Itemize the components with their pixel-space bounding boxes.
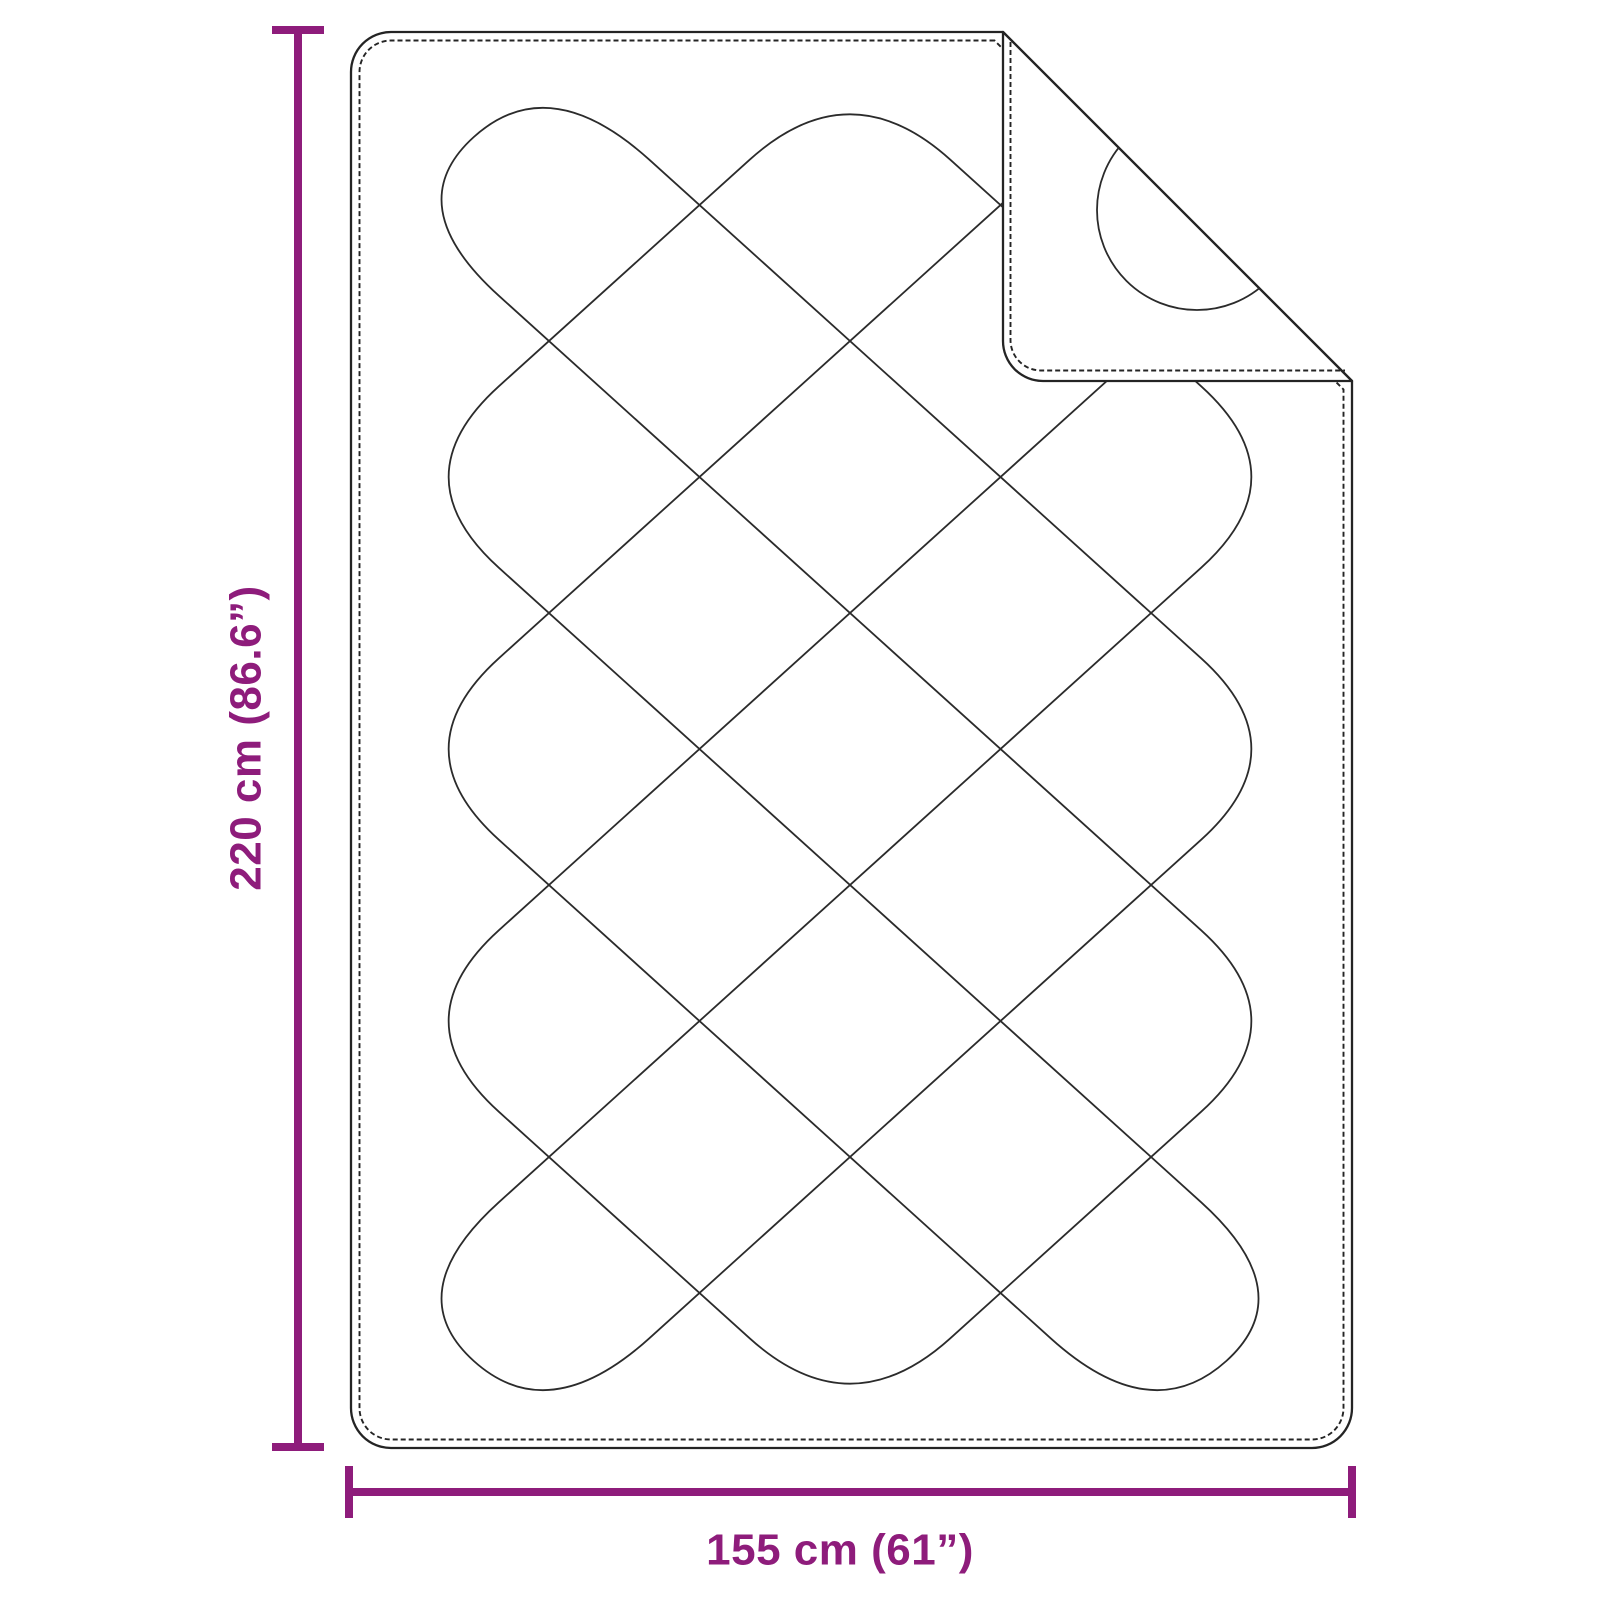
height-dimension-label: 220 cm (86.6”): [222, 585, 271, 890]
width-dimension: 155 cm (61”): [349, 1466, 1352, 1575]
fold-flap: [1003, 32, 1352, 381]
diagram-svg: 220 cm (86.6”) 155 cm (61”): [0, 0, 1600, 1600]
blanket: [351, 32, 1352, 1448]
fold-flap-outline: [1003, 32, 1352, 381]
height-dimension: 220 cm (86.6”): [222, 30, 325, 1447]
product-diagram: 220 cm (86.6”) 155 cm (61”): [0, 0, 1600, 1600]
width-dimension-label: 155 cm (61”): [706, 1526, 974, 1575]
